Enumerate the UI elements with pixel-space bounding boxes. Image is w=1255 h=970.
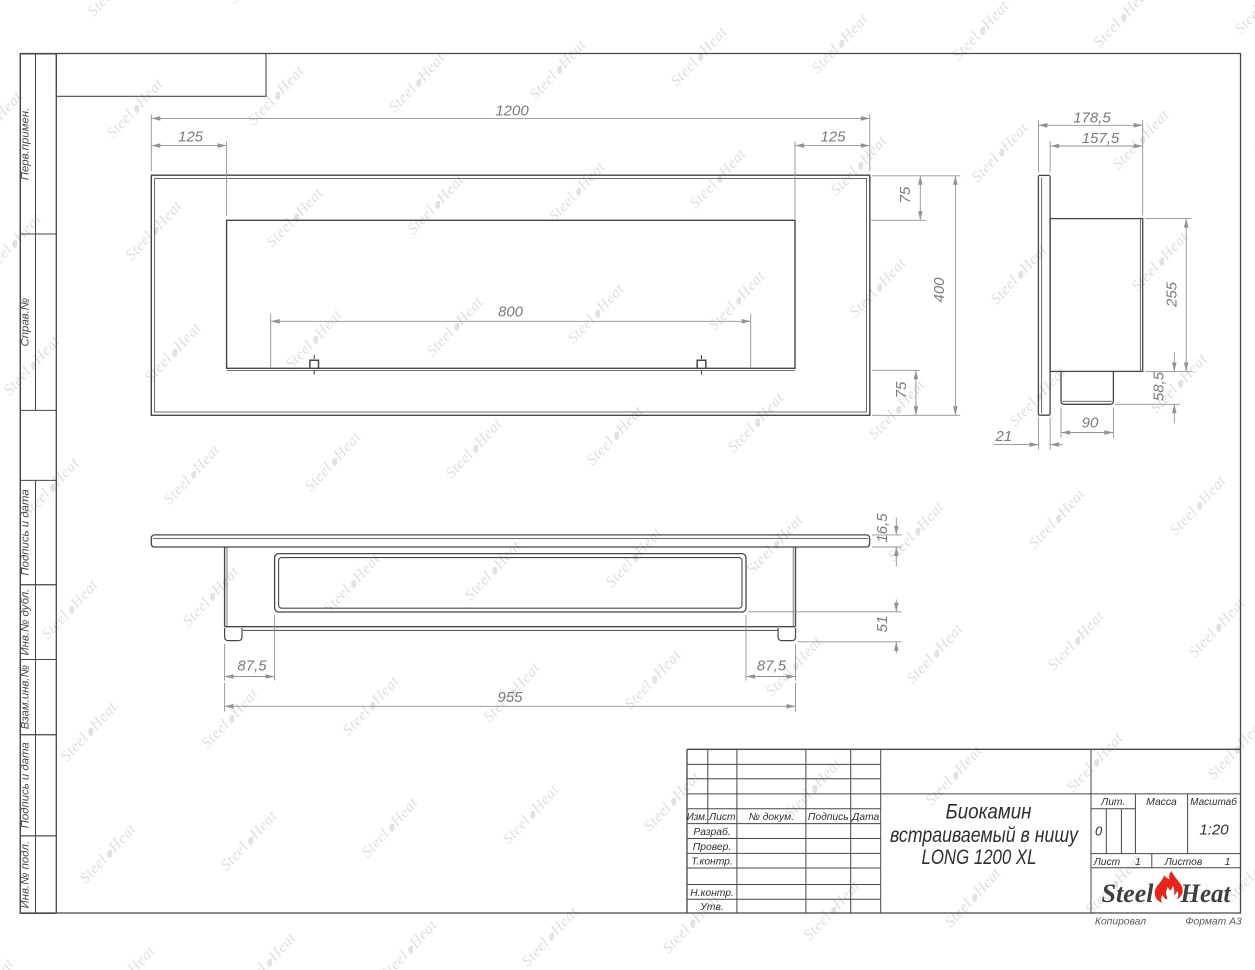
svg-text:Инв.№ дубл.: Инв.№ дубл. bbox=[20, 589, 32, 656]
svg-text:Лист: Лист bbox=[1093, 857, 1121, 868]
svg-text:Справ.№: Справ.№ bbox=[20, 298, 32, 347]
svg-text:Н.контр.: Н.контр. bbox=[690, 888, 734, 899]
svg-text:1: 1 bbox=[1225, 857, 1231, 868]
svg-text:125: 125 bbox=[820, 129, 846, 146]
svg-text:75: 75 bbox=[897, 186, 914, 203]
svg-text:Дата: Дата bbox=[851, 812, 879, 823]
svg-text:1:20: 1:20 bbox=[1199, 822, 1229, 839]
svg-text:58,5: 58,5 bbox=[1151, 371, 1168, 401]
svg-text:встраиваемый в нишу: встраиваемый в нишу bbox=[890, 824, 1079, 847]
svg-text:75: 75 bbox=[893, 381, 910, 398]
svg-text:51: 51 bbox=[874, 616, 891, 633]
svg-text:16,5: 16,5 bbox=[874, 513, 891, 543]
svg-text:Подпись и дата: Подпись и дата bbox=[20, 742, 32, 828]
svg-text:Утв.: Утв. bbox=[699, 902, 723, 913]
svg-text:Листов: Листов bbox=[1164, 857, 1203, 868]
svg-text:400: 400 bbox=[931, 277, 948, 303]
svg-text:Масштаб: Масштаб bbox=[1190, 796, 1237, 808]
svg-text:255: 255 bbox=[1164, 281, 1181, 308]
svg-text:Подпись и дата: Подпись и дата bbox=[20, 489, 32, 575]
svg-text:Формат А3: Формат А3 bbox=[1185, 917, 1242, 928]
svg-text:Изм.: Изм. bbox=[687, 812, 708, 823]
svg-text:Перв.примен.: Перв.примен. bbox=[20, 108, 32, 181]
svg-text:Т.контр.: Т.контр. bbox=[691, 857, 733, 868]
svg-text:21: 21 bbox=[994, 428, 1012, 445]
svg-text:Провер.: Провер. bbox=[693, 842, 731, 853]
svg-text:Лист: Лист bbox=[708, 812, 736, 823]
svg-text:LONG 1200 XL: LONG 1200 XL bbox=[922, 846, 1037, 869]
svg-text:Steel: Steel bbox=[1102, 879, 1155, 908]
svg-text:157,5: 157,5 bbox=[1082, 130, 1120, 147]
svg-text:№ докум.: № докум. bbox=[749, 812, 794, 823]
svg-text:178,5: 178,5 bbox=[1073, 109, 1111, 126]
svg-text:Инв.№ подл.: Инв.№ подл. bbox=[20, 841, 32, 909]
svg-text:Heat: Heat bbox=[1180, 879, 1232, 908]
svg-text:Биокамин: Биокамин bbox=[946, 801, 1032, 824]
svg-text:800: 800 bbox=[498, 303, 524, 320]
svg-text:0: 0 bbox=[1095, 824, 1103, 839]
svg-text:Подпись: Подпись bbox=[808, 812, 849, 823]
svg-text:125: 125 bbox=[178, 129, 204, 146]
svg-text:90: 90 bbox=[1082, 414, 1099, 431]
svg-text:955: 955 bbox=[497, 689, 523, 706]
svg-text:1: 1 bbox=[1135, 857, 1141, 868]
svg-text:Масса: Масса bbox=[1146, 797, 1177, 808]
svg-text:87,5: 87,5 bbox=[237, 658, 267, 675]
svg-text:1200: 1200 bbox=[495, 103, 529, 120]
svg-text:Копировал: Копировал bbox=[1095, 917, 1146, 928]
svg-text:Взам.инв.№: Взам.инв.№ bbox=[20, 665, 32, 729]
svg-text:Разраб.: Разраб. bbox=[693, 826, 730, 838]
svg-text:87,5: 87,5 bbox=[757, 658, 787, 675]
svg-text:Лит.: Лит. bbox=[1100, 797, 1125, 808]
